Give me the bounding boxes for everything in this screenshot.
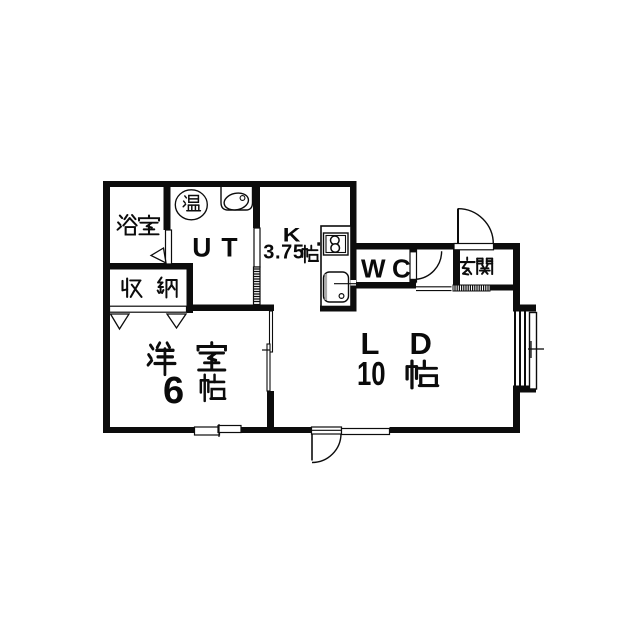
svg-text:10: 10 [357, 356, 386, 393]
svg-text:3.75: 3.75 [263, 242, 304, 264]
svg-text:WC: WC [361, 254, 417, 284]
svg-text:UT: UT [192, 233, 247, 263]
svg-text:6: 6 [163, 370, 184, 412]
